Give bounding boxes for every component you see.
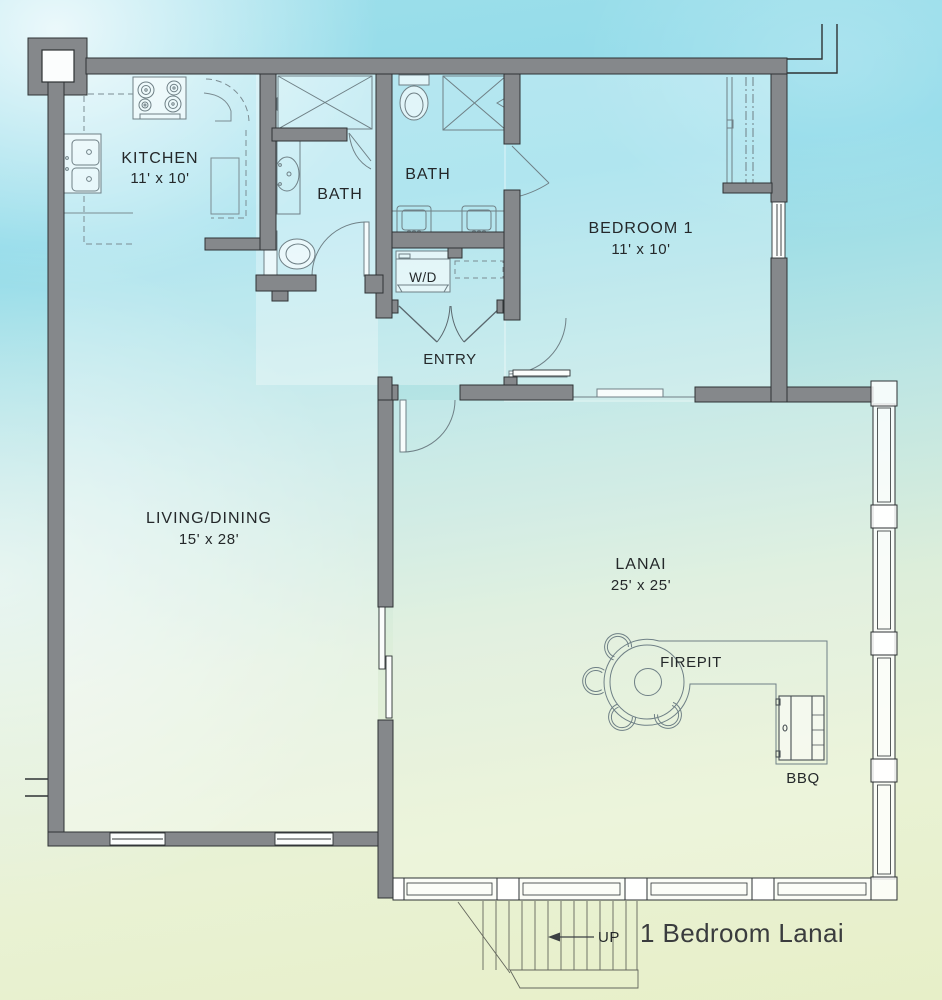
lanai-post-e3 [871,759,897,782]
kitchen-dims: 11' x 10' [130,170,189,187]
kitchen-label: KITCHEN [121,150,198,168]
bedroom-west-wall [504,190,520,320]
bath1-wall-tab [272,291,288,301]
lanai-post-ne [871,381,897,406]
lanai-dims: 25' x 25' [611,577,671,594]
living-window-2 [275,833,333,845]
living-dining-label: LIVING/DINING [146,510,272,528]
bath2-label: BATH [405,166,450,184]
lanai-post-s2 [625,878,647,900]
lanai-post-sw [393,878,404,900]
lanai-label: LANAI [615,556,666,574]
closet-shelf [723,183,772,193]
bath2-south-wall [392,232,504,248]
entry-label: ENTRY [423,351,477,368]
firepit-label: FIREPIT [660,654,722,671]
kitchen-bath-wall [260,74,276,250]
plan-title: 1 Bedroom Lanai [640,918,844,949]
laundry-label: W/D [409,270,436,286]
floorplan-page: KITCHEN 11' x 10' BATH BATH BEDROOM 1 11… [0,0,942,1000]
bedroom-slider-panel [513,370,570,376]
bath1-door-post [365,275,383,293]
living-window-1 [110,833,165,845]
entry-south-tab [504,377,517,385]
bbq-label: BBQ [786,770,819,787]
kitchen-wall-stub [205,238,260,250]
living-dining-dims: 15' x 28' [179,531,239,548]
bath2-toilet-icon [399,75,429,120]
lanai-post-e2 [871,632,897,655]
stairs-up-label: UP [598,929,620,946]
lanai-post-s3 [752,878,774,900]
left-wall [48,74,64,832]
bath1-south-wall [256,275,316,291]
bedroom-west-wall-top [504,74,520,144]
lanai-floor [393,400,873,878]
lanai-post-e1 [871,505,897,528]
lanai-west-wall-step [392,385,398,400]
bath1-shower-wall [272,128,347,141]
room-floor-tints [64,74,873,878]
kitchen-sink-icon [63,134,101,193]
bedroom-east-wall-top [771,74,787,202]
bedroom1-label: BEDROOM 1 [588,220,693,238]
bbq-grill-icon [776,696,824,760]
entry-jamb-left [392,300,398,313]
corner-column-void [42,50,74,82]
lanai-post-se [871,877,897,900]
bath1-label: BATH [317,186,362,204]
top-wall [86,58,787,74]
stove-icon [133,77,186,119]
entry-jamb-right [497,300,503,313]
lanai-west-wall-upper [378,400,393,607]
living-lanai-window [379,607,392,718]
lanai-west-wall-cap [378,377,392,400]
bedroom-east-wall-bottom [771,258,787,402]
roofline-marker-inner [787,24,822,59]
bedroom-window [772,202,785,258]
bedroom1-dims: 11' x 10' [611,241,670,258]
living-south-wall [48,832,393,846]
left-wall-ticks [25,779,48,796]
bath2-wall-tab [448,248,462,258]
roofline-marker-outer [787,24,837,73]
lanai-post-s1 [497,878,519,900]
lanai-west-wall-lower [378,720,393,898]
entry-south-wall [460,385,573,400]
